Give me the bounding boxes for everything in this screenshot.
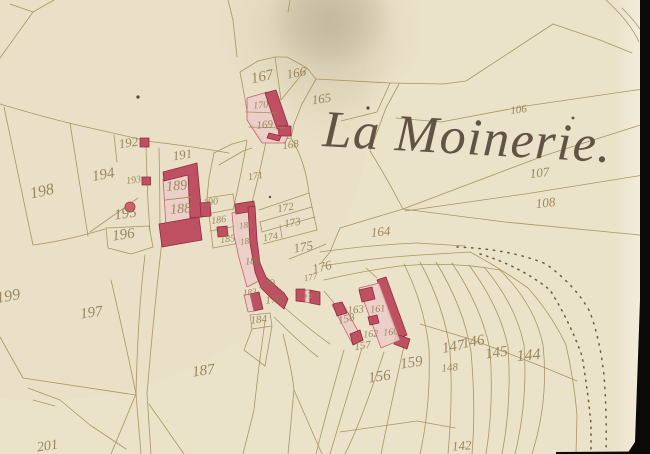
- svg-text:170: 170: [253, 99, 269, 111]
- svg-text:185: 185: [219, 233, 235, 246]
- svg-text:195: 195: [113, 204, 138, 223]
- svg-text:192: 192: [118, 134, 140, 152]
- svg-text:190: 190: [202, 196, 218, 209]
- svg-text:193: 193: [125, 174, 141, 187]
- svg-text:148: 148: [441, 361, 459, 374]
- svg-text:156: 156: [367, 367, 392, 386]
- svg-text:182: 182: [239, 219, 254, 230]
- svg-text:168: 168: [282, 138, 301, 152]
- svg-text:197: 197: [79, 303, 105, 322]
- svg-text:164: 164: [370, 223, 391, 240]
- svg-text:180: 180: [245, 255, 261, 267]
- svg-text:162: 162: [363, 328, 379, 340]
- svg-text:157: 157: [354, 339, 373, 353]
- svg-text:160: 160: [383, 326, 399, 338]
- svg-text:178: 178: [265, 293, 283, 306]
- svg-text:163: 163: [347, 303, 365, 316]
- svg-text:179: 179: [258, 277, 276, 290]
- svg-text:189: 189: [166, 178, 188, 195]
- svg-text:159: 159: [399, 353, 424, 372]
- svg-text:191: 191: [172, 146, 193, 164]
- svg-text:108: 108: [535, 194, 556, 211]
- svg-text:142: 142: [451, 437, 472, 453]
- svg-text:188: 188: [170, 201, 192, 218]
- svg-text:169: 169: [256, 118, 274, 131]
- svg-text:183: 183: [243, 286, 258, 297]
- svg-text:186: 186: [210, 214, 226, 227]
- svg-text:187: 187: [191, 361, 217, 380]
- svg-text:196: 196: [111, 225, 136, 244]
- svg-text:144: 144: [516, 346, 541, 365]
- svg-text:201: 201: [36, 438, 59, 454]
- svg-text:161: 161: [370, 303, 386, 315]
- svg-text:184: 184: [250, 313, 268, 326]
- svg-text:145: 145: [484, 343, 509, 362]
- svg-text:181: 181: [240, 235, 254, 246]
